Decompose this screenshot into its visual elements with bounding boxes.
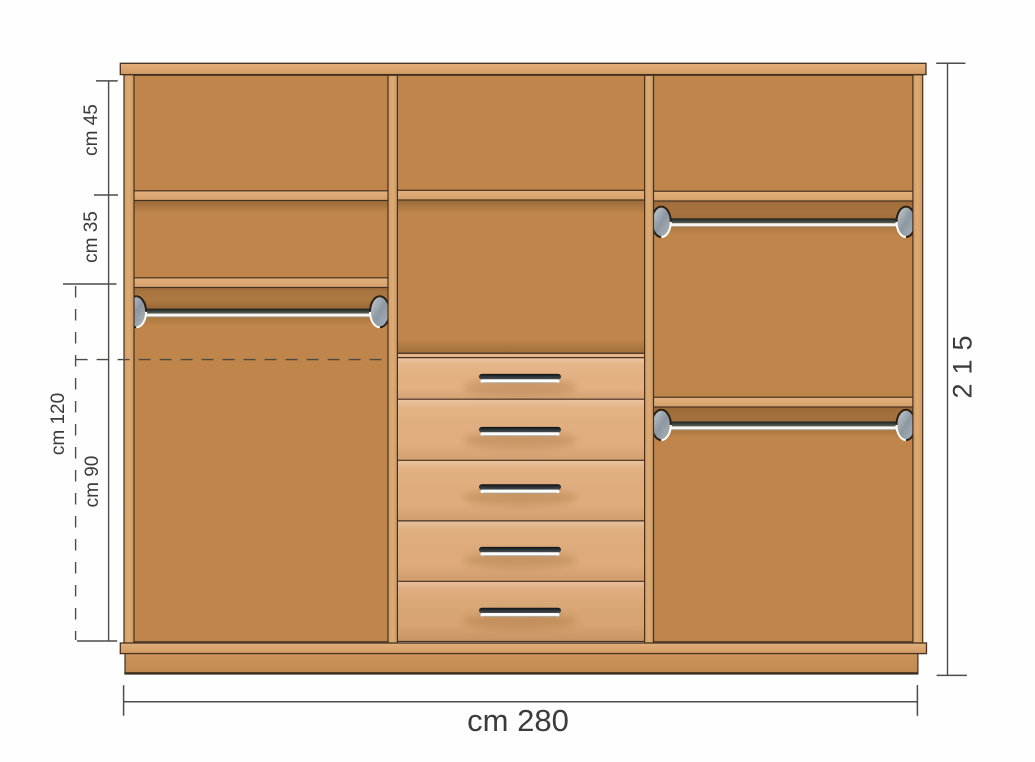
- svg-text:cm 280: cm 280: [467, 703, 569, 738]
- svg-text:cm 120: cm 120: [48, 393, 69, 455]
- svg-text:cm 45: cm 45: [81, 104, 102, 156]
- svg-text:215: 215: [947, 326, 977, 398]
- svg-text:cm 90: cm 90: [82, 456, 103, 508]
- svg-text:cm 35: cm 35: [81, 211, 102, 263]
